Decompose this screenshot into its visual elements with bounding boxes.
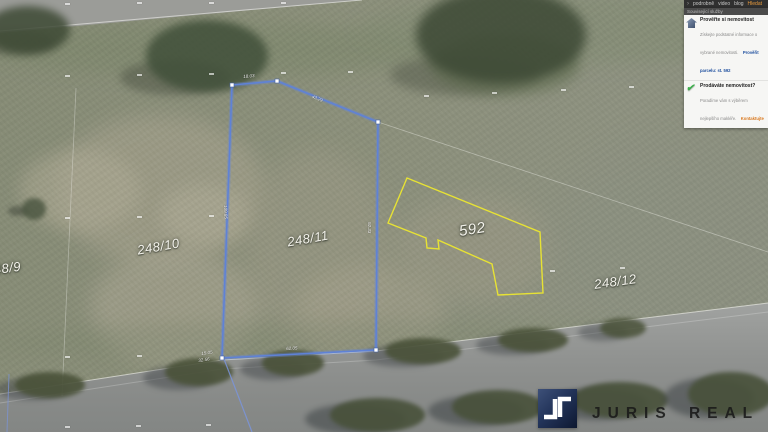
check-icon: ✔ (686, 83, 698, 95)
service-title: Prodáváte nemovitost? (700, 83, 766, 89)
dimension-label-right: 92.33 (367, 222, 372, 233)
menu-item-hledat[interactable]: Hledat (748, 1, 762, 7)
selected-parcel-glow (222, 81, 378, 358)
menu-item-podrobne[interactable]: podrobně (693, 1, 714, 7)
dimension-label-left: 109.85 (223, 205, 228, 219)
blue-boundary-extension (224, 359, 252, 432)
juris-real-wordmark: JURIS REAL (592, 405, 768, 423)
service-title: Prověřte si nemovitost (700, 17, 766, 23)
dimension-label-bottom: 62.05 (286, 345, 298, 351)
related-services-panel: Související služby Prověřte si nemovitos… (684, 8, 768, 128)
house-icon (686, 17, 698, 29)
service-item-verify-property[interactable]: Prověřte si nemovitost Získejte podstatn… (684, 15, 768, 81)
menu-item-blog[interactable]: blog (734, 1, 743, 7)
chevron-right-icon[interactable]: › (687, 1, 689, 7)
blue-boundary-left (7, 374, 9, 432)
juris-real-logo-icon (538, 389, 577, 428)
dimension-label-top: 18.03 (243, 73, 255, 79)
vertex-markers (220, 79, 380, 360)
parcels-layer (0, 0, 768, 432)
map-viewport[interactable]: 248/9 248/10 248/11 592 248/12 18.03 43.… (0, 0, 768, 432)
service-item-sell-property[interactable]: ✔ Prodáváte nemovitost? Poradíme vám s v… (684, 81, 768, 128)
services-panel-header: Související služby (684, 8, 768, 15)
menu-item-video[interactable]: video (718, 1, 730, 7)
selected-parcel-outline-248-11[interactable] (222, 81, 378, 358)
contact-link[interactable]: Kontaktujte (741, 116, 764, 121)
top-menu-bar: › podrobně video blog Hledat (684, 0, 768, 8)
